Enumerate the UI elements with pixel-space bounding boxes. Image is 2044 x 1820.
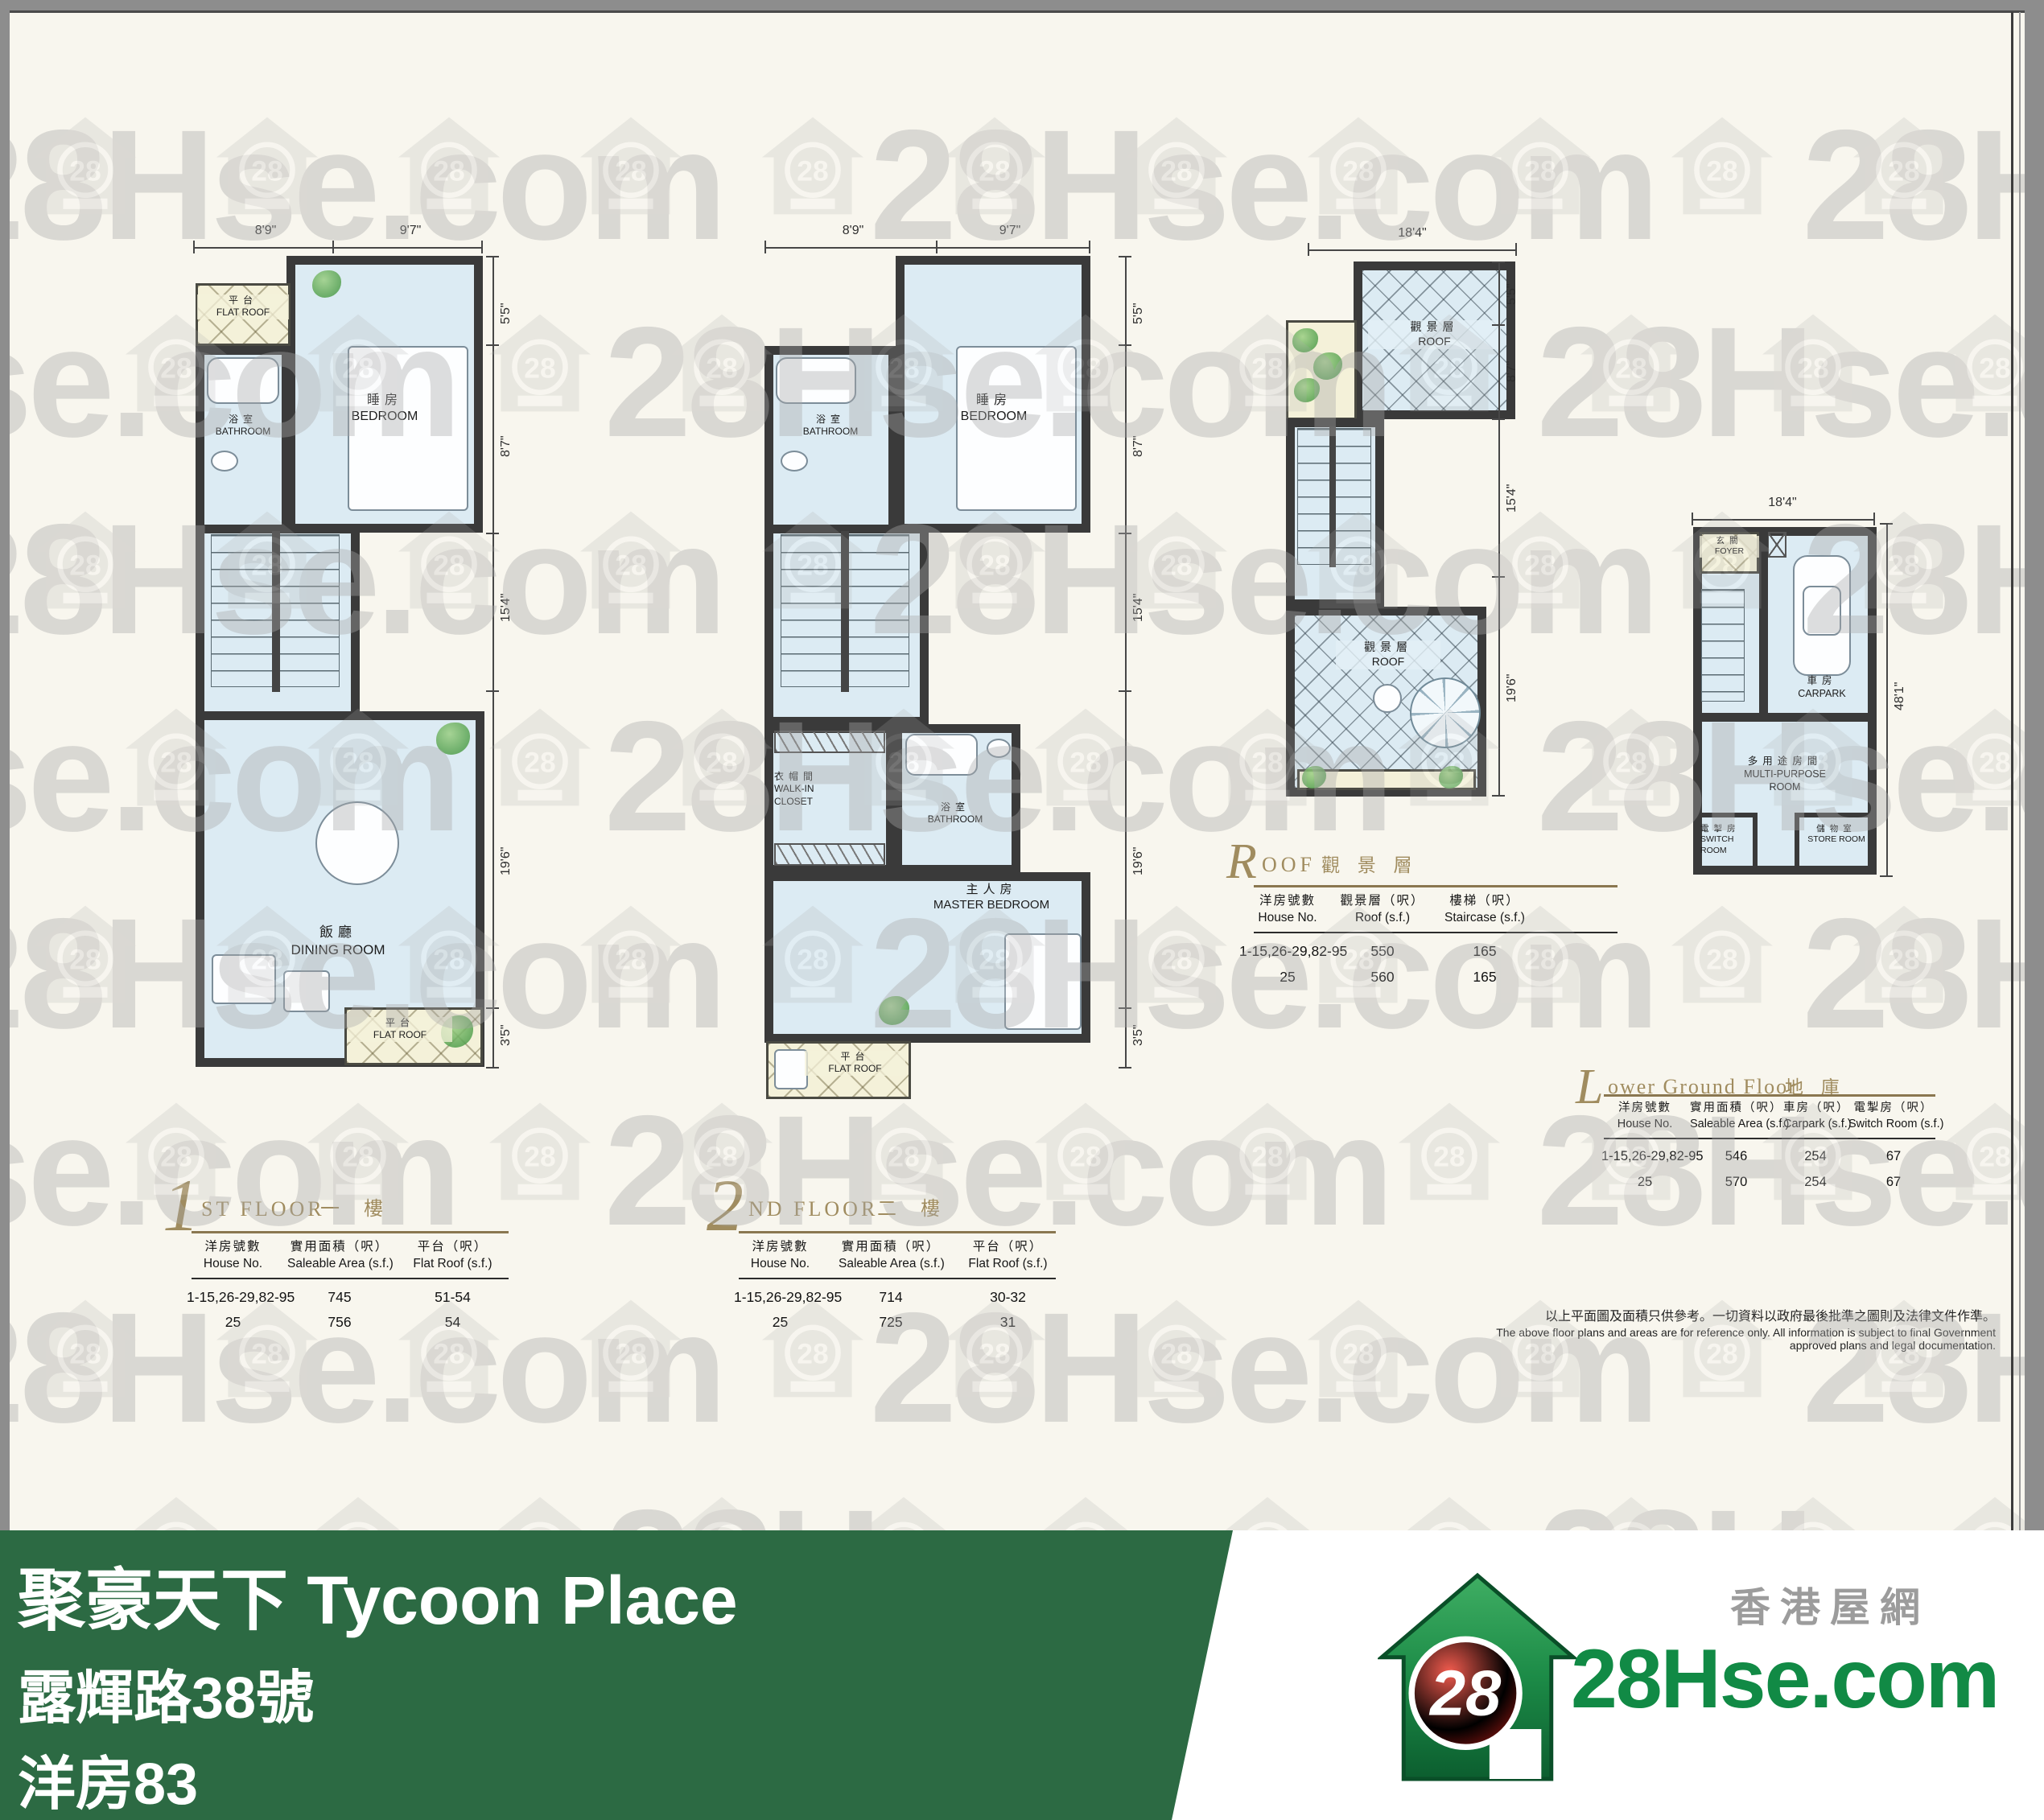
plan2-top-dim-line [764,247,1090,249]
table2-rule-mid [739,1278,1056,1279]
room-label-carpark: 車房 CARPARK [1774,674,1869,700]
table3-cell: 25 [1239,969,1336,986]
table4-header-2: 實用面積（呎） Saleable Area (s.f.) [1690,1101,1782,1132]
tick [936,241,938,253]
room-label-bathroom-1: 浴室 BATHROOM [197,414,289,439]
inner-wall [1693,713,1877,722]
room-label-roof-lower: 觀景層 ROOF [1336,640,1440,669]
plan2-dim-side-4: 19'6" [1130,817,1148,905]
tick [1492,418,1505,420]
tick [1873,513,1875,525]
plan4-dim-side-1: 48'1" [1891,660,1909,732]
room-label-master: 主人房 MASTER BEDROOM [911,882,1072,912]
plan3-dim-side-4: 19'6" [1503,650,1521,726]
plan3-dim-top-1: 18'4" [1332,226,1493,241]
car-cabin-icon [1803,586,1841,636]
table2-header-1: 洋房號數 House No. [734,1239,826,1273]
table4-header-1: 洋房號數 House No. [1601,1101,1688,1132]
table2-title: ND FLOOR [748,1199,878,1220]
plan2-dim-side-5: 3'5" [1130,1004,1148,1067]
plan1-dim-side-4: 19'6" [497,817,515,905]
28hse-logo-icon: 28 [1378,1569,1577,1789]
disclaimer-en: The above floor plans and areas are for … [1449,1326,1996,1352]
bottom-banner: 聚豪天下 Tycoon Place 露輝路38號 洋房83 28 28Hse.c… [0,1530,2044,1820]
table2-cell: 1-15,26-29,82-95 [734,1289,826,1306]
table2-rule-top [739,1231,1056,1233]
sofa-icon [212,954,276,1004]
room-label-foyer: 玄關 FOYER [1700,536,1759,558]
table1-rule-top [192,1231,509,1233]
table4-cell: 570 [1690,1175,1782,1190]
bed-icon [348,346,468,511]
tick [481,241,483,253]
tick [1692,513,1693,525]
logo-tagline: 香港屋網 [1730,1575,1930,1633]
room-label-switch: 電掣房 SWITCH ROOM [1700,824,1750,856]
plan1-dim-side-1: 5'5" [497,278,515,350]
table2-cell: 30-32 [954,1289,1062,1306]
table4-cell: 67 [1848,1149,1939,1164]
table4-cell: 546 [1690,1149,1782,1164]
table3-cell: 165 [1424,943,1545,960]
plan1-dim-top-1: 8'9" [205,224,326,238]
table2-cell: 725 [839,1314,943,1331]
inner-wall [1759,527,1768,720]
tick [1492,795,1505,797]
table4-cell: 254 [1783,1175,1848,1190]
stair-rail [272,531,280,692]
table3-cell: 165 [1424,969,1545,986]
toilet-icon [211,451,238,471]
table2-title-zh: 二 樓 [877,1200,950,1219]
plan3-dim-side-2: 8'7" [1503,340,1521,404]
plan3-right-dim-line [1498,261,1500,797]
plan3-dim-side-3: 15'4" [1503,460,1521,536]
plan1-top-dim-line [193,247,483,249]
tick [486,533,499,534]
table1-header-2: 實用面積（呎） Saleable Area (s.f.) [287,1239,392,1273]
table1-header-3: 平台（呎） Flat Roof (s.f.) [398,1239,507,1273]
plan1-dim-side-3: 15'4" [497,563,515,652]
plan4-right-dim-line [1886,523,1888,877]
umbrella-icon [1410,677,1481,748]
plan2-dim-top-1: 8'9" [785,224,921,238]
table1-cell: 25 [187,1314,279,1331]
armchair-icon [283,970,330,1012]
table3-number: R [1226,837,1257,887]
tick [193,241,195,253]
28hse-brand-text: 28Hse.com [1571,1632,1998,1727]
table4-cell: 254 [1783,1149,1848,1164]
room-label-flatroof-top-1: 平台 FLAT ROOF [197,294,289,319]
table3-cell: 550 [1334,943,1431,960]
dining-table-icon [315,801,399,885]
estate-title: 聚豪天下 Tycoon Place [18,1546,738,1644]
plan1-dim-top-2: 9'7" [342,224,479,238]
room-label-bedroom-2: 睡房 BEDROOM [905,393,1082,426]
table3-rule-mid [1254,932,1617,933]
tick [1492,324,1505,326]
tick [1880,523,1893,525]
table4-number: L [1576,1062,1603,1112]
closet-icon [1767,532,1786,558]
tick [1119,690,1131,692]
tick [486,690,499,692]
tick [1492,261,1505,263]
room-label-walkin: 衣帽間 WALK-IN CLOSET [774,771,855,808]
bed-icon [956,346,1077,511]
table1-cell: 54 [398,1314,507,1331]
tick [1119,1067,1131,1069]
room-label-flatroof-2: 平台 FLAT ROOF [805,1051,905,1076]
tick [764,241,766,253]
plan3-dim-side-1: 5'5" [1503,269,1521,320]
scan-right-edge-2 [2019,12,2021,1530]
plan2-dim-side-1: 5'5" [1130,278,1148,350]
stair-rail [841,531,849,692]
scan-top-edge [10,10,2025,13]
table4-header-4: 電掣房（呎） Switch Room (s.f.) [1848,1101,1939,1132]
plan1-dim-side-2: 8'7" [497,406,515,487]
table1-cell: 745 [287,1289,392,1306]
table2-cell: 714 [839,1289,943,1306]
tick [486,256,499,257]
plan3-top-dim-line [1308,249,1517,251]
table1-title: ST FLOOR [201,1199,325,1220]
table1-title-zh: 一 樓 [320,1200,393,1219]
table3-header-2: 觀景層（呎） Roof (s.f.) [1334,893,1431,927]
plan1-dim-side-5: 3'5" [497,1004,515,1067]
disclaimer-zh: 以上平面圖及面積只供參考。一切資料以政府最後批準之圖則及法律文件作準。 [1449,1305,1996,1324]
room-label-bedroom-1: 睡房 BEDROOM [296,393,473,426]
table3-cell: 560 [1334,969,1431,986]
bathtub-icon [776,357,856,404]
tick [1492,576,1505,578]
table2-header-2: 實用面積（呎） Saleable Area (s.f.) [839,1239,943,1273]
estate-address: 露輝路38號 [18,1650,314,1735]
room-label-roof-upper: 觀景層 ROOF [1368,320,1501,349]
table3-rule-top [1254,885,1617,887]
staircase-icon [1701,589,1745,702]
table2-cell: 31 [954,1314,1062,1331]
table4-cell: 1-15,26-29,82-95 [1601,1149,1688,1164]
table1-header-1: 洋房號數 House No. [187,1239,279,1273]
tick [332,241,334,253]
logo-badge-number: 28 [1428,1657,1502,1729]
tick [1119,256,1131,257]
room-label-multi: 多用途房間 MULTI-PURPOSE ROOM [1729,755,1841,793]
table1-cell: 1-15,26-29,82-95 [187,1289,279,1306]
table4-header-3: 車房（呎） Carpark (s.f.) [1783,1101,1848,1132]
room-label-store: 儲物室 STORE ROOM [1803,824,1870,846]
stair-rail [1329,426,1336,567]
deck-chair-icon [774,1049,808,1089]
table4-rule-top [1604,1094,1935,1097]
table1-cell: 756 [287,1314,392,1331]
plan4-top-dim-line [1692,519,1875,521]
stool-icon [1373,684,1402,713]
tick [1308,243,1309,256]
table1-cell: 51-54 [398,1289,507,1306]
bathtub-icon [207,357,279,404]
wardrobe-icon [774,731,885,753]
table3-title-zh: 觀 景 層 [1321,856,1419,875]
toilet-icon [781,451,808,471]
tick [1880,875,1893,877]
table4-cell: 25 [1601,1175,1688,1190]
plan1-right-dim-line [492,256,494,1069]
bed-icon [1004,933,1082,1030]
room-label-dining: 飯廳 DINING ROOM [241,924,435,959]
plan2-right-dim-line [1125,256,1127,1069]
table3-header-3: 樓梯（呎） Staircase (s.f.) [1424,893,1545,927]
tick [1515,243,1517,256]
scan-right-edge [2011,12,2013,1530]
table2-cell: 25 [734,1314,826,1331]
table3-title: OOF [1262,854,1316,875]
table3-cell: 1-15,26-29,82-95 [1239,943,1336,960]
estate-house-number: 洋房83 [18,1736,198,1820]
room-label-bathroom-2a: 浴室 BATHROOM [766,414,895,439]
table2-header-3: 平台（呎） Flat Roof (s.f.) [954,1239,1062,1273]
tick [1089,241,1090,253]
room-label-bathroom-2b: 浴室 BATHROOM [895,801,1016,826]
plan2-dim-side-2: 8'7" [1130,406,1148,487]
room-label-flatroof-bottom-1: 平台 FLAT ROOF [348,1017,452,1042]
tick [486,1067,499,1069]
wardrobe-icon [774,843,885,866]
plan4-dim-top-1: 18'4" [1702,496,1863,510]
table3-header-1: 洋房號數 House No. [1239,893,1336,927]
plan2-dim-top-2: 9'7" [938,224,1082,238]
plan2-dim-side-3: 15'4" [1130,563,1148,652]
page: { "watermark": {"text": "28Hse.com", "ba… [0,0,2044,1820]
tick [1119,533,1131,534]
toilet-icon [987,739,1011,758]
table4-cell: 67 [1848,1175,1939,1190]
table4-rule-mid [1604,1138,1935,1139]
bathtub-icon [905,734,978,776]
table1-rule-mid [192,1278,509,1279]
